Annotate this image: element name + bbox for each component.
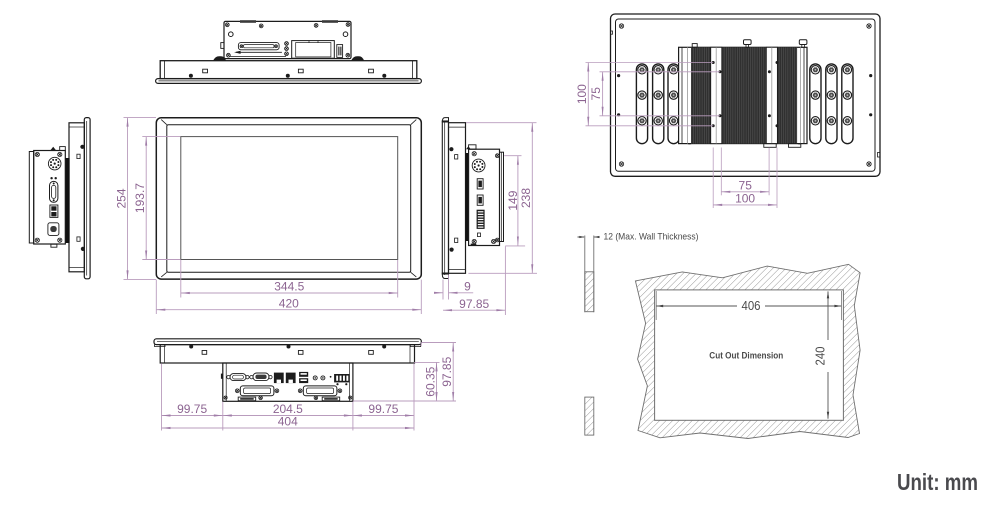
svg-text:193.7: 193.7 <box>133 183 147 213</box>
svg-text:75: 75 <box>739 178 753 192</box>
svg-text:Cut Out Dimension: Cut Out Dimension <box>709 351 783 361</box>
svg-text:100: 100 <box>735 192 755 206</box>
svg-text:60.35: 60.35 <box>423 366 437 396</box>
svg-text:420: 420 <box>279 296 299 310</box>
svg-text:238: 238 <box>519 188 533 208</box>
svg-text:75: 75 <box>589 87 603 101</box>
svg-text:254: 254 <box>114 188 128 208</box>
svg-text:99.75: 99.75 <box>177 402 207 416</box>
svg-text:100: 100 <box>575 84 589 104</box>
svg-text:149: 149 <box>506 190 520 210</box>
svg-text:344.5: 344.5 <box>274 280 304 294</box>
svg-text:97.85: 97.85 <box>440 356 454 386</box>
svg-text:240: 240 <box>813 347 828 366</box>
svg-text:97.85: 97.85 <box>459 297 489 311</box>
svg-text:406: 406 <box>742 298 761 313</box>
svg-text:12 (Max. Wall Thickness): 12 (Max. Wall Thickness) <box>604 231 699 242</box>
svg-text:9: 9 <box>464 279 471 293</box>
svg-text:Unit: mm: Unit: mm <box>897 469 978 495</box>
svg-text:99.75: 99.75 <box>368 402 398 416</box>
svg-text:404: 404 <box>278 415 298 429</box>
